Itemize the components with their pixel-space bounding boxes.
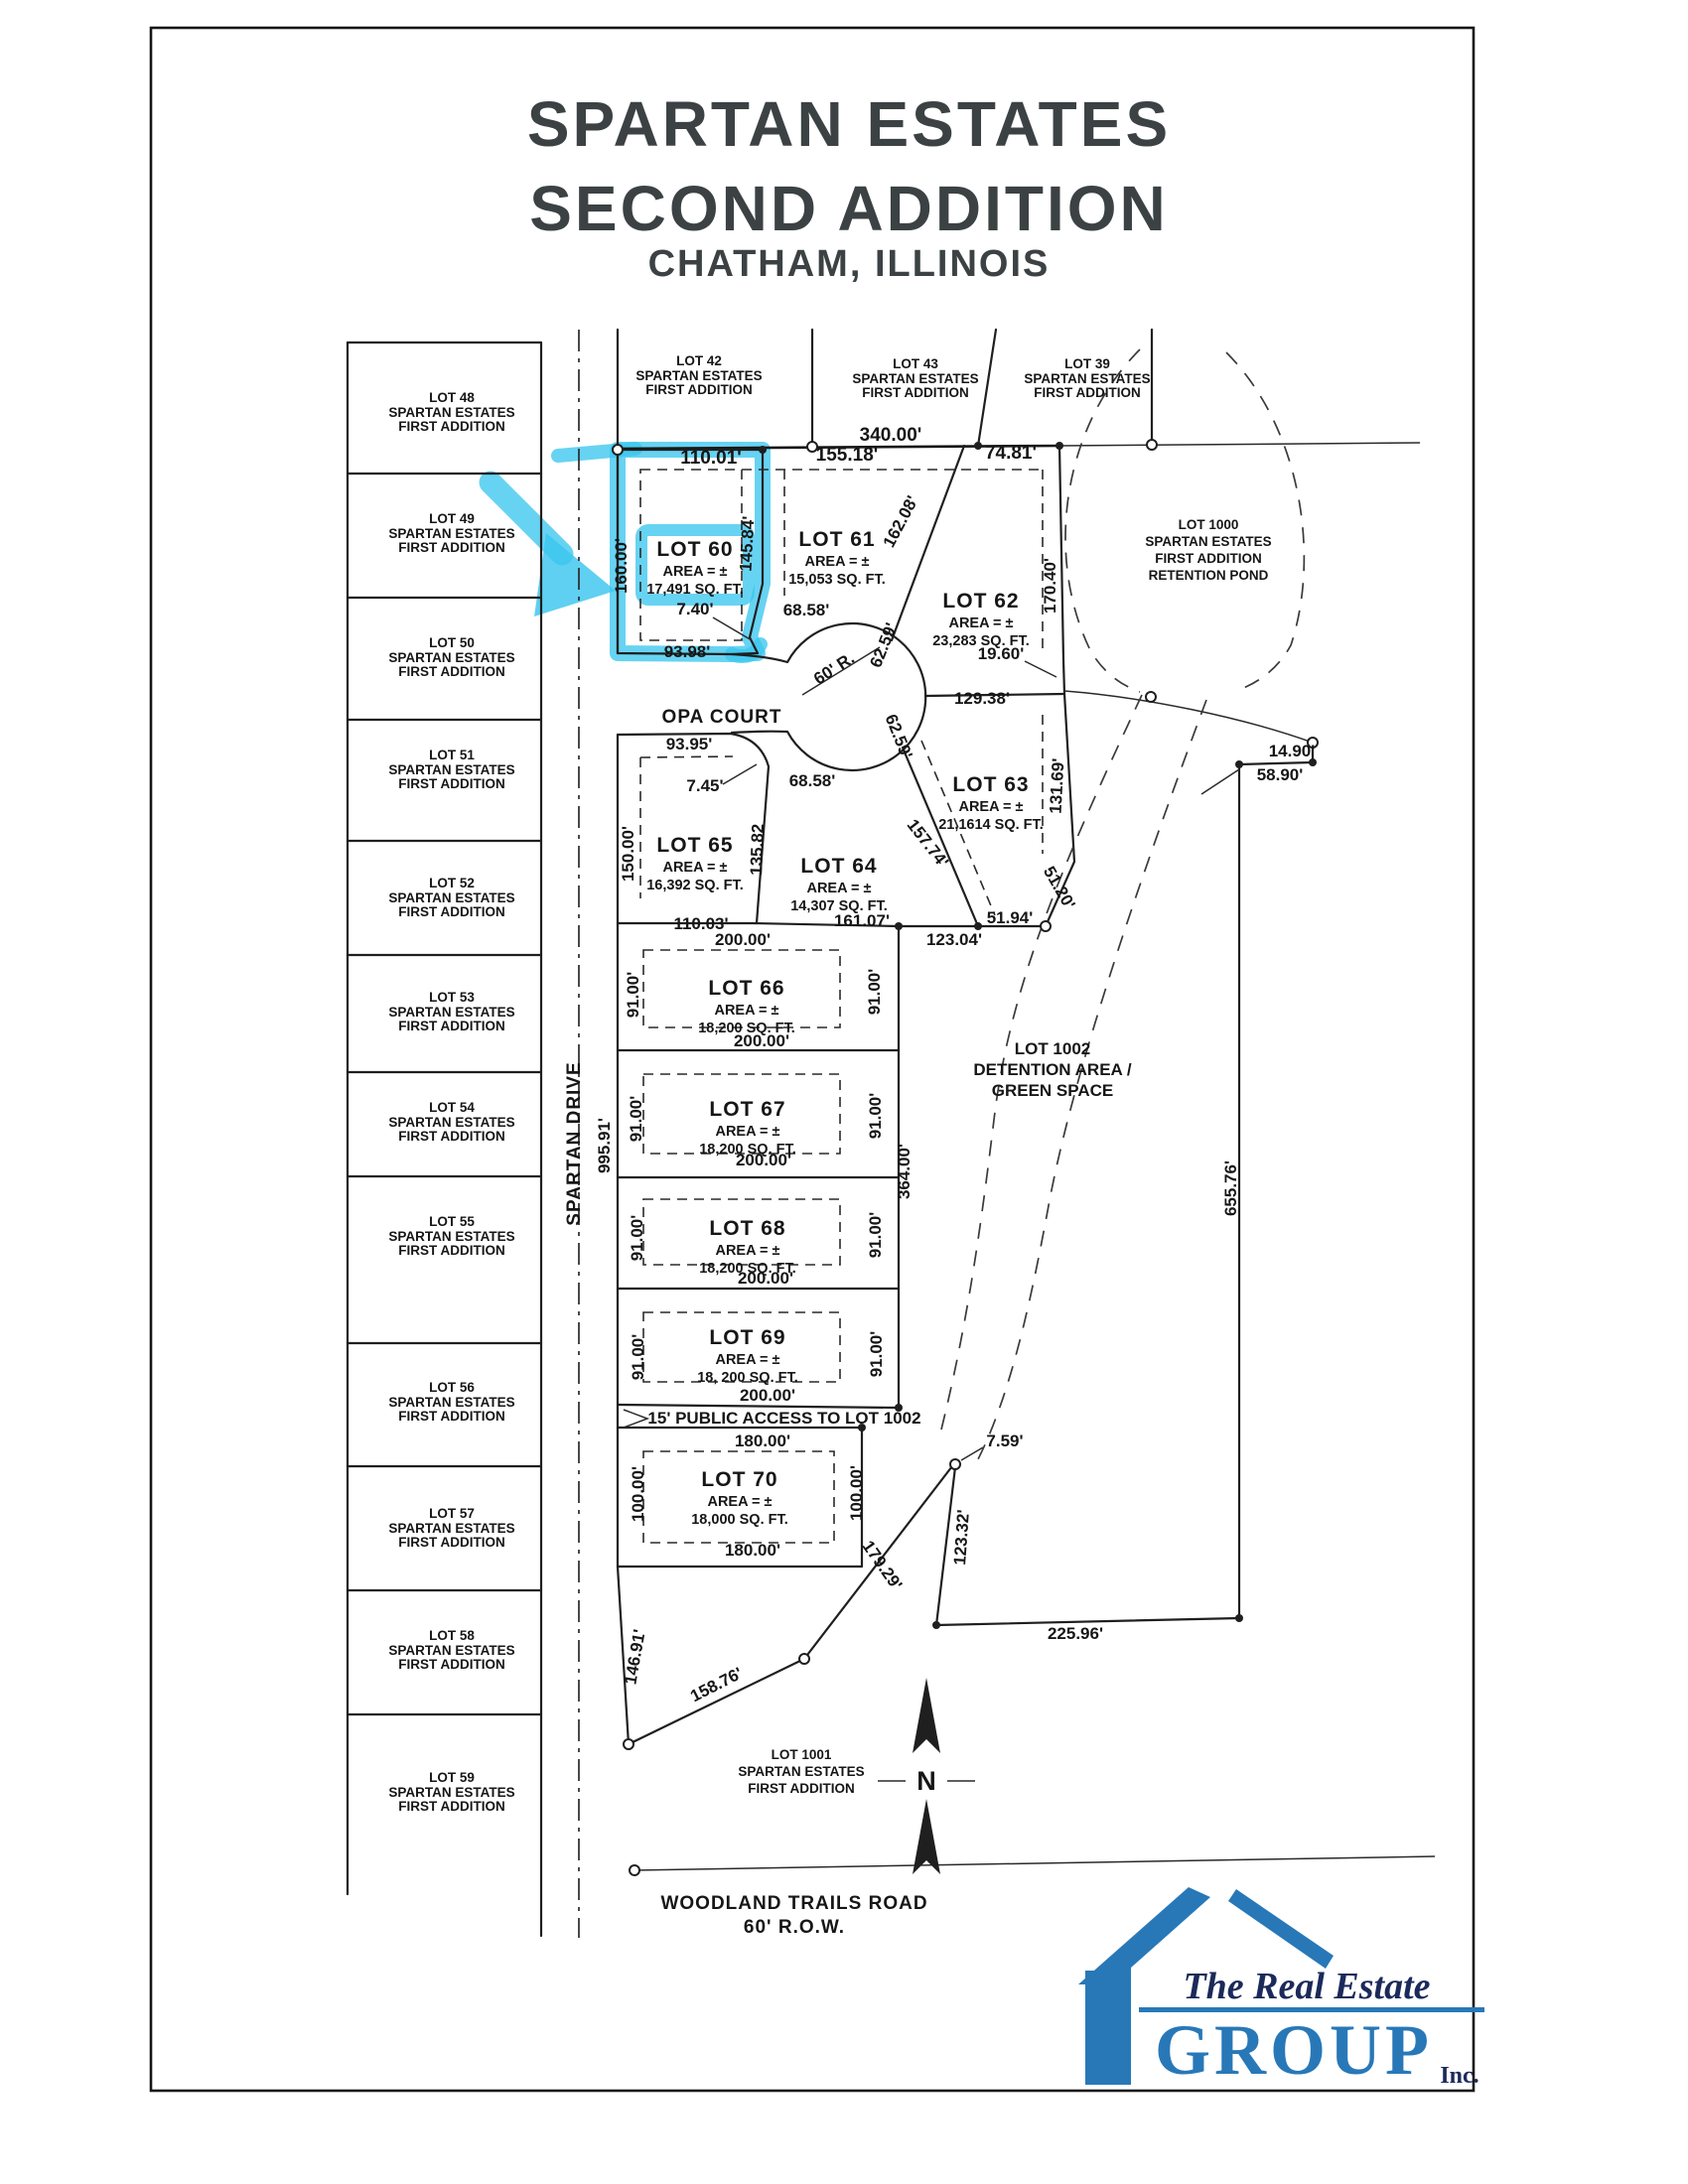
dim-93-98: 93.98' [664,642,711,661]
dim-91d-l: 91.00' [629,1334,647,1381]
svg-text:FIRST ADDITION: FIRST ADDITION [398,1129,505,1144]
dim-200d: 200.00' [738,1269,793,1288]
east-boundary [936,743,1313,1625]
svg-text:SPARTAN ESTATES: SPARTAN ESTATES [1024,371,1150,386]
dim-68-58a: 68.58' [783,601,830,619]
svg-text:AREA = ±: AREA = ± [714,1003,778,1019]
north-arrow: N [878,1678,975,1874]
dim-180a: 180.00' [735,1432,790,1450]
dim-74-81: 74.81' [985,443,1037,464]
dim-62-59b: 62.59' [882,712,916,761]
svg-text:SPARTAN ESTATES: SPARTAN ESTATES [388,762,514,777]
svg-text:AREA = ±: AREA = ± [958,799,1023,815]
svg-text:FIRST ADDITION: FIRST ADDITION [398,776,505,791]
svg-text:SPARTAN ESTATES: SPARTAN ESTATES [388,1229,514,1244]
logo-house-wall [1085,1971,1131,2085]
svg-text:GREEN SPACE: GREEN SPACE [992,1081,1114,1100]
svg-text:SPARTAN ESTATES: SPARTAN ESTATES [388,1643,514,1658]
dim-170-40: 170.40' [1041,558,1059,614]
dim-62-59a: 62.59' [866,620,901,670]
svg-text:FIRST ADDITION: FIRST ADDITION [398,1799,505,1814]
lot49-label: LOT 49 [429,511,475,526]
lot52-label: LOT 52 [429,876,475,890]
svg-text:AREA = ±: AREA = ± [804,554,869,570]
lot53-label: LOT 53 [429,990,475,1005]
svg-text:60' R.O.W.: 60' R.O.W. [744,1917,845,1938]
svg-text:FIRST ADDITION: FIRST ADDITION [398,540,505,555]
svg-text:SPARTAN ESTATES: SPARTAN ESTATES [1145,534,1271,549]
dim-100-l: 100.00' [629,1466,647,1522]
svg-text:SPARTAN ESTATES: SPARTAN ESTATES [388,1395,514,1410]
dim-123-04: 123.04' [926,930,982,949]
svg-text:SPARTAN ESTATES: SPARTAN ESTATES [388,1005,514,1020]
dim-93-95: 93.95' [666,735,713,753]
dim-91a-r: 91.00' [865,969,884,1016]
dim-145-84: 145.84' [737,515,759,572]
svg-text:FIRST ADDITION: FIRST ADDITION [398,1409,505,1424]
pond-contours [941,349,1304,1459]
dim-364-00: 364.00' [895,1144,914,1199]
dim-340: 340.00' [860,425,922,446]
dim-19-60: 19.60' [978,644,1025,663]
dim-123-32: 123.32' [950,1509,973,1566]
dim-146-91: 146.91' [621,1628,648,1686]
woodland-road-label: WOODLAND TRAILS ROAD [660,1893,927,1914]
lot56-label: LOT 56 [429,1380,475,1395]
svg-text:FIRST ADDITION: FIRST ADDITION [398,1657,505,1672]
dim-161-07: 161.07' [834,911,890,930]
svg-text:FIRST ADDITION: FIRST ADDITION [398,664,505,679]
svg-text:SPARTAN ESTATES: SPARTAN ESTATES [635,368,762,383]
page-title-line1: SPARTAN ESTATES [527,88,1171,160]
dim-91b-r: 91.00' [866,1093,885,1140]
svg-text:FIRST ADDITION: FIRST ADDITION [645,382,753,397]
lot59-label: LOT 59 [429,1770,475,1785]
dim-91d-r: 91.00' [867,1331,886,1378]
svg-text:FIRST ADDITION: FIRST ADDITION [862,385,969,400]
svg-text:FIRST ADDITION: FIRST ADDITION [1034,385,1141,400]
page-title-line2: SECOND ADDITION [529,173,1169,244]
lot62-title: LOT 62 [942,590,1019,613]
lot61-title: LOT 61 [798,528,875,551]
svg-text:DETENTION AREA /: DETENTION AREA / [973,1060,1132,1079]
svg-text:18,000 SQ. FT.: 18,000 SQ. FT. [691,1512,788,1528]
svg-text:FIRST ADDITION: FIRST ADDITION [1155,551,1262,566]
dim-155-18: 155.18' [816,445,879,466]
dim-129-38: 129.38' [954,689,1010,708]
svg-text:AREA = ±: AREA = ± [662,860,727,876]
svg-text:15,053 SQ. FT.: 15,053 SQ. FT. [788,572,886,588]
new-lot-labels: LOT 60 AREA = ± 17,491 SQ. FT. LOT 61 AR… [646,528,1044,1528]
lot50-label: LOT 50 [429,635,475,650]
dim-131-69: 131.69' [1047,757,1068,814]
dim-200a: 200.00' [715,930,771,949]
dim-58-90: 58.90' [1257,765,1304,784]
svg-text:SPARTAN ESTATES: SPARTAN ESTATES [388,1521,514,1536]
dim-158-76: 158.76' [687,1664,746,1706]
svg-text:AREA = ±: AREA = ± [806,881,871,896]
dim-995-91: 995.91' [595,1118,614,1173]
svg-text:SPARTAN ESTATES: SPARTAN ESTATES [388,650,514,665]
dim-160-00: 160.00' [612,538,631,594]
lot48-label: LOT 48 [429,390,475,405]
svg-text:FIRST ADDITION: FIRST ADDITION [398,904,505,919]
dim-14-90: 14.90' [1269,742,1316,760]
lot60-title: LOT 60 [656,538,733,561]
lot64-title: LOT 64 [800,855,877,878]
radius-label: 60' R. [810,648,858,688]
page-title-line3: CHATHAM, ILLINOIS [648,243,1051,285]
dim-655-76: 655.76' [1221,1160,1240,1216]
spartan-drive-label: SPARTAN DRIVE [564,1061,585,1225]
lot65-title: LOT 65 [656,834,733,857]
title-block: SPARTAN ESTATES SECOND ADDITION CHATHAM,… [527,88,1171,285]
dim-135-82: 135.82 [747,823,768,876]
logo-text-group: GROUP [1155,2010,1433,2090]
lot43-label: LOT 43 [893,356,938,371]
svg-text:SPARTAN ESTATES: SPARTAN ESTATES [388,526,514,541]
svg-text:18, 200 SQ. FT.: 18, 200 SQ. FT. [697,1370,798,1386]
svg-text:SPARTAN ESTATES: SPARTAN ESTATES [388,405,514,420]
dim-150-00: 150.00' [619,826,637,882]
lot1000-south-curve [1064,691,1313,743]
logo-text-inc: Inc. [1440,2063,1478,2089]
svg-text:21,1614 SQ. FT.: 21,1614 SQ. FT. [938,817,1044,833]
lot58-label: LOT 58 [429,1628,475,1643]
svg-text:AREA = ±: AREA = ± [715,1352,779,1368]
dim-200e: 200.00' [740,1386,795,1405]
dim-7-45: 7.45' [686,776,723,795]
lot69-title: LOT 69 [709,1326,785,1349]
svg-text:FIRST ADDITION: FIRST ADDITION [398,1019,505,1033]
dim-91a-l: 91.00' [624,972,642,1019]
lot55-label: LOT 55 [429,1214,475,1229]
lot54-label: LOT 54 [429,1100,475,1115]
woodland-road-line [634,1856,1435,1870]
dim-68-58b: 68.58' [789,771,836,790]
dim-91c-r: 91.00' [866,1212,885,1259]
svg-text:17,491 SQ. FT.: 17,491 SQ. FT. [646,582,744,598]
lot1002-label: LOT 1002 [1015,1039,1091,1058]
dim-200c: 200.00' [736,1151,791,1169]
public-access-label: 15' PUBLIC ACCESS TO LOT 1002 [647,1409,920,1428]
logo-roof-right [1228,1889,1334,1969]
dim-225-96: 225.96' [1048,1624,1103,1643]
dim-100-r: 100.00' [847,1465,866,1521]
plat-drawing: SPARTAN ESTATES SECOND ADDITION CHATHAM,… [0,0,1688,2184]
lot1000-label: LOT 1000 [1179,517,1239,532]
top-lot-labels: LOT 42 SPARTAN ESTATES FIRST ADDITION LO… [635,353,1150,400]
svg-text:AREA = ±: AREA = ± [662,564,727,580]
lot68-title: LOT 68 [709,1217,785,1240]
lot66-title: LOT 66 [708,977,784,1000]
opa-court-label: OPA COURT [662,707,782,728]
plat-map-page: SPARTAN ESTATES SECOND ADDITION CHATHAM,… [0,0,1688,2184]
dim-180b: 180.00' [725,1541,780,1560]
dim-7-40: 7.40' [676,600,713,618]
svg-text:FIRST ADDITION: FIRST ADDITION [398,1535,505,1550]
highlight-arrow-head [534,533,616,616]
svg-text:RETENTION POND: RETENTION POND [1149,568,1269,583]
svg-text:FIRST ADDITION: FIRST ADDITION [398,1243,505,1258]
lot67-title: LOT 67 [709,1098,785,1121]
svg-text:AREA = ±: AREA = ± [707,1494,772,1510]
svg-text:SPARTAN ESTATES: SPARTAN ESTATES [738,1764,864,1779]
dim-51-94: 51.94' [987,908,1034,927]
lot42-label: LOT 42 [676,353,722,368]
svg-text:SPARTAN ESTATES: SPARTAN ESTATES [852,371,978,386]
svg-text:AREA = ±: AREA = ± [948,615,1013,631]
svg-text:FIRST ADDITION: FIRST ADDITION [398,419,505,434]
svg-text:FIRST ADDITION: FIRST ADDITION [748,1781,855,1796]
svg-text:16,392 SQ. FT.: 16,392 SQ. FT. [646,878,744,893]
lot1001-label: LOT 1001 [772,1747,832,1762]
svg-text:SPARTAN ESTATES: SPARTAN ESTATES [388,1785,514,1800]
svg-text:SPARTAN ESTATES: SPARTAN ESTATES [388,890,514,905]
svg-text:AREA = ±: AREA = ± [715,1124,779,1140]
lot39-label: LOT 39 [1064,356,1110,371]
dim-7-59: 7.59' [986,1432,1023,1450]
lot51-label: LOT 51 [429,748,475,762]
north-letter: N [916,1766,936,1796]
southwest-boundary [618,1462,955,1744]
realtor-logo: The Real Estate GROUP Inc. [1078,1887,1484,2090]
dim-51-20: 51.20' [1040,863,1079,912]
svg-text:SPARTAN ESTATES: SPARTAN ESTATES [388,1115,514,1130]
dim-91c-l: 91.00' [628,1215,646,1262]
lot70-title: LOT 70 [701,1468,777,1491]
dim-110-01: 110.01' [680,448,742,469]
dim-179-29: 179.29' [859,1537,907,1593]
svg-text:AREA = ±: AREA = ± [715,1243,779,1259]
lot63-title: LOT 63 [952,773,1029,796]
dim-200b: 200.00' [734,1031,789,1050]
logo-text-real-estate: The Real Estate [1183,1966,1430,2007]
dim-162-08: 162.08' [880,492,922,550]
left-lot-labels: LOT 48 SPARTAN ESTATES FIRST ADDITION LO… [388,390,514,1814]
dim-91b-l: 91.00' [627,1096,645,1143]
lot57-label: LOT 57 [429,1506,475,1521]
